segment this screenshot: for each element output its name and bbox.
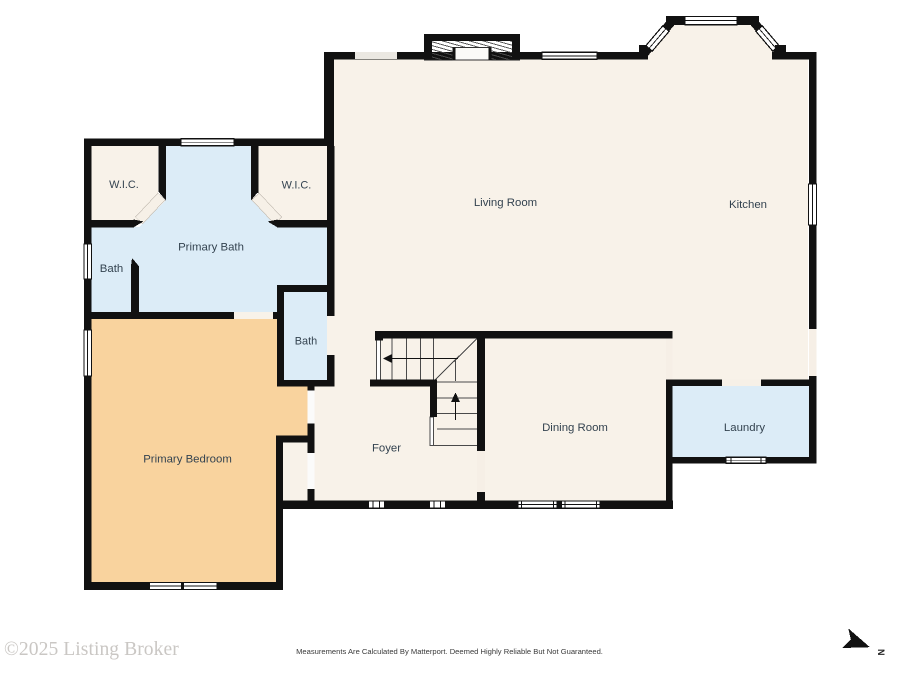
svg-text:W.I.C.: W.I.C. [282, 180, 312, 192]
svg-text:©2025 Listing Broker: ©2025 Listing Broker [4, 639, 179, 660]
svg-text:Bath: Bath [100, 263, 123, 275]
svg-text:Measurements Are Calculated By: Measurements Are Calculated By Matterpor… [296, 647, 603, 656]
svg-text:Kitchen: Kitchen [729, 199, 767, 211]
svg-text:Living Room: Living Room [474, 197, 537, 209]
svg-text:Laundry: Laundry [724, 422, 765, 434]
svg-text:Foyer: Foyer [372, 443, 401, 455]
svg-text:Bath: Bath [295, 336, 317, 348]
svg-text:Primary Bedroom: Primary Bedroom [143, 454, 232, 466]
svg-text:W.I.C.: W.I.C. [109, 179, 139, 191]
svg-text:N: N [876, 649, 886, 656]
svg-text:Dining Room: Dining Room [542, 422, 608, 434]
svg-text:Primary Bath: Primary Bath [178, 242, 244, 254]
